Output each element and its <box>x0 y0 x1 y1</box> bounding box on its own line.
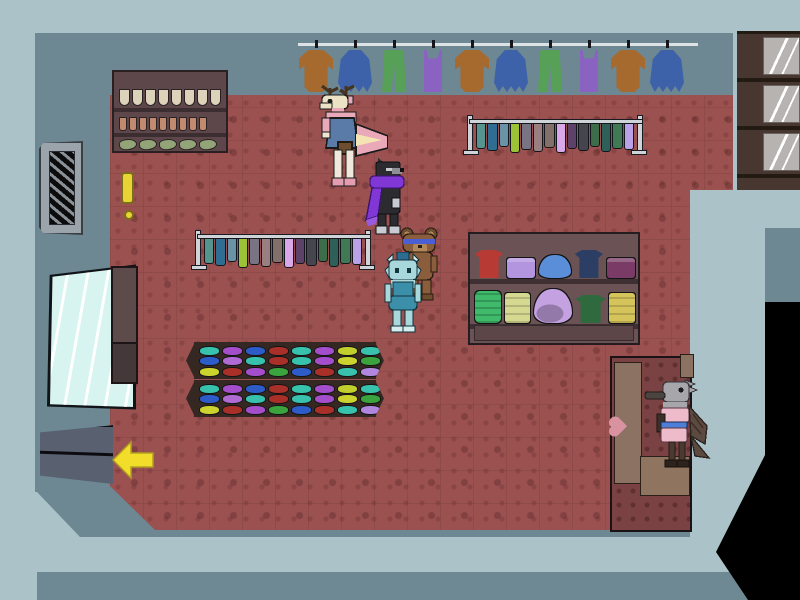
rack-garment <box>329 238 339 267</box>
divider-lower-panel <box>113 342 136 382</box>
folded-hat <box>268 384 289 394</box>
folded-hat <box>360 394 381 404</box>
display-shelf[interactable] <box>468 232 640 345</box>
shelf-board <box>114 133 226 137</box>
rack-garment <box>510 123 520 153</box>
wall-shelf-item <box>189 117 197 131</box>
folded-hat <box>337 405 358 415</box>
rack-garment <box>318 238 328 262</box>
changing-room-door[interactable] <box>614 362 642 484</box>
rack-garment <box>624 123 634 150</box>
folded-hat <box>222 346 243 356</box>
rail-cloth-sweater <box>455 50 489 92</box>
wall-shelf-item <box>145 89 156 106</box>
rack-garment <box>567 123 577 149</box>
folded-hat <box>245 356 266 366</box>
rail-cloth-tank <box>424 50 442 92</box>
exit-arrow-icon[interactable] <box>112 440 154 480</box>
folded-hat <box>360 356 381 366</box>
folded-hat <box>291 367 312 377</box>
npc-teal-goat-shopper[interactable] <box>377 252 429 334</box>
rail-cloth-skirt <box>650 50 684 92</box>
wall-shelf-item <box>139 117 147 131</box>
folded-hat <box>337 384 358 394</box>
wall-shelf-item <box>119 89 130 106</box>
folded-hat <box>291 384 312 394</box>
rack-garment <box>238 238 248 268</box>
folded-hat <box>314 384 335 394</box>
cabinet-glass-door <box>763 85 800 123</box>
rack-garment <box>601 123 611 152</box>
folded-hat <box>245 394 266 404</box>
folded-hat <box>337 367 358 377</box>
rack-garment <box>521 123 531 150</box>
heart-icon <box>611 418 627 434</box>
clothing-rack-right[interactable] <box>467 109 643 155</box>
folded-hat <box>222 356 243 366</box>
wall-shelf-item <box>199 117 207 131</box>
rail-cloth-pants <box>535 50 565 92</box>
rack-garment <box>612 123 622 149</box>
hat-table-upper[interactable] <box>186 342 384 379</box>
folded-hat <box>268 367 289 377</box>
folded-hat <box>314 356 335 366</box>
rack-garment <box>476 123 486 149</box>
display-item-shirt <box>575 250 603 278</box>
folded-hat <box>314 346 335 356</box>
rack-garment <box>249 238 259 265</box>
rack-garment <box>352 238 362 265</box>
rack-garment <box>272 238 282 263</box>
folded-hat <box>314 367 335 377</box>
shelf-board <box>470 279 638 284</box>
rack-garment <box>340 238 350 264</box>
glass-cabinet[interactable] <box>737 31 800 190</box>
display-item-hatstack <box>534 289 571 323</box>
display-item-stack <box>609 293 635 323</box>
cabinet-section <box>737 34 800 82</box>
folded-hat <box>245 346 266 356</box>
shelf-board <box>114 108 226 112</box>
folded-hat <box>199 384 220 394</box>
display-item-folded <box>507 258 535 278</box>
folded-hat <box>268 394 289 404</box>
wall-shelf-item <box>197 89 208 106</box>
rack-garment <box>306 238 316 266</box>
folded-hat <box>291 346 312 356</box>
folded-hat <box>268 356 289 366</box>
shop-scene <box>0 0 800 600</box>
wall-shelf-row-shoes <box>119 138 221 150</box>
folded-hat <box>199 367 220 377</box>
rack-garment <box>578 123 588 151</box>
rack-garment <box>261 238 271 267</box>
folded-hat <box>222 384 243 394</box>
folded-hat <box>268 405 289 415</box>
rack-garment <box>556 123 566 153</box>
hat-row <box>199 367 381 377</box>
folded-hat <box>199 356 220 366</box>
rack-garment <box>544 123 554 148</box>
display-item-folded <box>607 258 635 278</box>
alert-exclamation-dot <box>124 210 134 220</box>
rack-hanging-clothes <box>204 238 362 268</box>
folded-hat <box>245 405 266 415</box>
wooden-divider-panel <box>111 266 138 384</box>
folded-hat <box>291 394 312 404</box>
rack-garment <box>295 238 305 264</box>
wall-shelf-item <box>179 117 187 131</box>
cabinet-section <box>737 130 800 178</box>
wall-shelf-item <box>132 89 143 106</box>
folded-hat <box>337 346 358 356</box>
hat-row <box>199 394 381 404</box>
folded-hat <box>337 394 358 404</box>
changing-room-ledge <box>680 354 694 378</box>
rack-garment <box>215 238 225 266</box>
folded-hat <box>222 367 243 377</box>
right-outer-wall <box>765 228 800 302</box>
rack-garment <box>227 238 237 262</box>
wall-shelf-item <box>171 89 182 106</box>
display-item-stack <box>505 293 531 323</box>
rack-garment <box>533 123 543 152</box>
folded-hat <box>314 394 335 404</box>
display-item-shirt <box>475 250 503 278</box>
cabinet-glass-door <box>763 37 800 75</box>
hat-row <box>199 405 381 415</box>
folded-hat <box>337 356 358 366</box>
rack-hanging-clothes <box>476 123 634 153</box>
rack-garment <box>499 123 509 147</box>
hat-table-lower[interactable] <box>186 380 384 417</box>
folded-hat <box>291 356 312 366</box>
display-shelf-bottom-row <box>475 287 635 323</box>
hat-row <box>199 356 381 366</box>
wall-shelf-row-gloves <box>119 114 221 131</box>
wall-shelf-item <box>138 138 157 151</box>
wall-shelf-item <box>184 89 195 106</box>
wall-shelf-item <box>198 138 217 151</box>
wall-shelf-item <box>158 89 169 106</box>
cabinet-section <box>737 82 800 130</box>
wall-shelf-item <box>210 89 221 106</box>
bottom-outer-band <box>37 572 800 600</box>
cabinet-glass-door <box>763 133 800 171</box>
wall-vent <box>39 141 83 235</box>
rail-cloth-tank <box>580 50 598 92</box>
wall-shelf-accessories[interactable] <box>112 70 228 153</box>
shelf-apron <box>474 325 634 341</box>
rack-garment <box>204 238 214 264</box>
wall-shelf-item <box>129 117 137 131</box>
rail-cloth-skirt <box>494 50 528 92</box>
display-item-roll <box>475 291 501 323</box>
folded-hat <box>314 405 335 415</box>
folded-hat <box>222 405 243 415</box>
display-item-hat <box>539 255 571 278</box>
folded-hat <box>222 394 243 404</box>
rack-garment <box>590 123 600 147</box>
hat-row <box>199 384 381 394</box>
wall-shelf-item <box>158 138 177 151</box>
alert-exclamation-icon[interactable] <box>121 172 134 204</box>
rack-garment <box>487 123 497 151</box>
wall-shelf-item <box>118 138 137 151</box>
display-shelf-top-row <box>475 242 635 278</box>
rail-cloth-sweater <box>611 50 645 92</box>
folded-hat <box>199 394 220 404</box>
folded-hat <box>199 405 220 415</box>
wall-shelf-row-socks <box>119 78 221 106</box>
hat-row <box>199 346 381 356</box>
wall-shelf-item <box>119 117 127 131</box>
folded-hat <box>199 346 220 356</box>
rack-garment <box>284 238 294 268</box>
folded-hat <box>291 405 312 415</box>
wall-shelf-item <box>169 117 177 131</box>
npc-gray-bird[interactable] <box>643 378 711 472</box>
wall-shelf-item <box>159 117 167 131</box>
wall-shelf-item <box>178 138 197 151</box>
folded-hat <box>268 346 289 356</box>
wall-shelf-item <box>149 117 157 131</box>
folded-hat <box>245 384 266 394</box>
vent-grille <box>49 151 75 225</box>
folded-hat <box>245 367 266 377</box>
clothing-rack-left[interactable] <box>195 224 371 270</box>
display-item-shirt <box>576 295 606 323</box>
